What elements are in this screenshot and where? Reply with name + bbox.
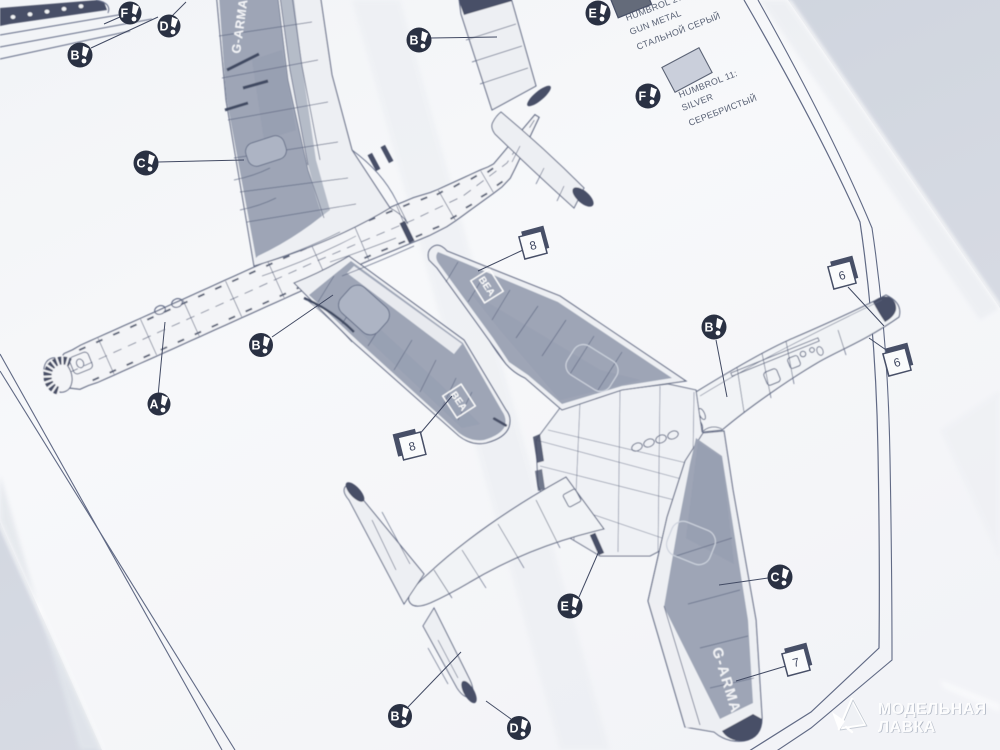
svg-text:МОДЕЛЬНАЯ: МОДЕЛЬНАЯ bbox=[878, 701, 987, 718]
svg-text:ЛАВКА: ЛАВКА bbox=[878, 719, 936, 736]
